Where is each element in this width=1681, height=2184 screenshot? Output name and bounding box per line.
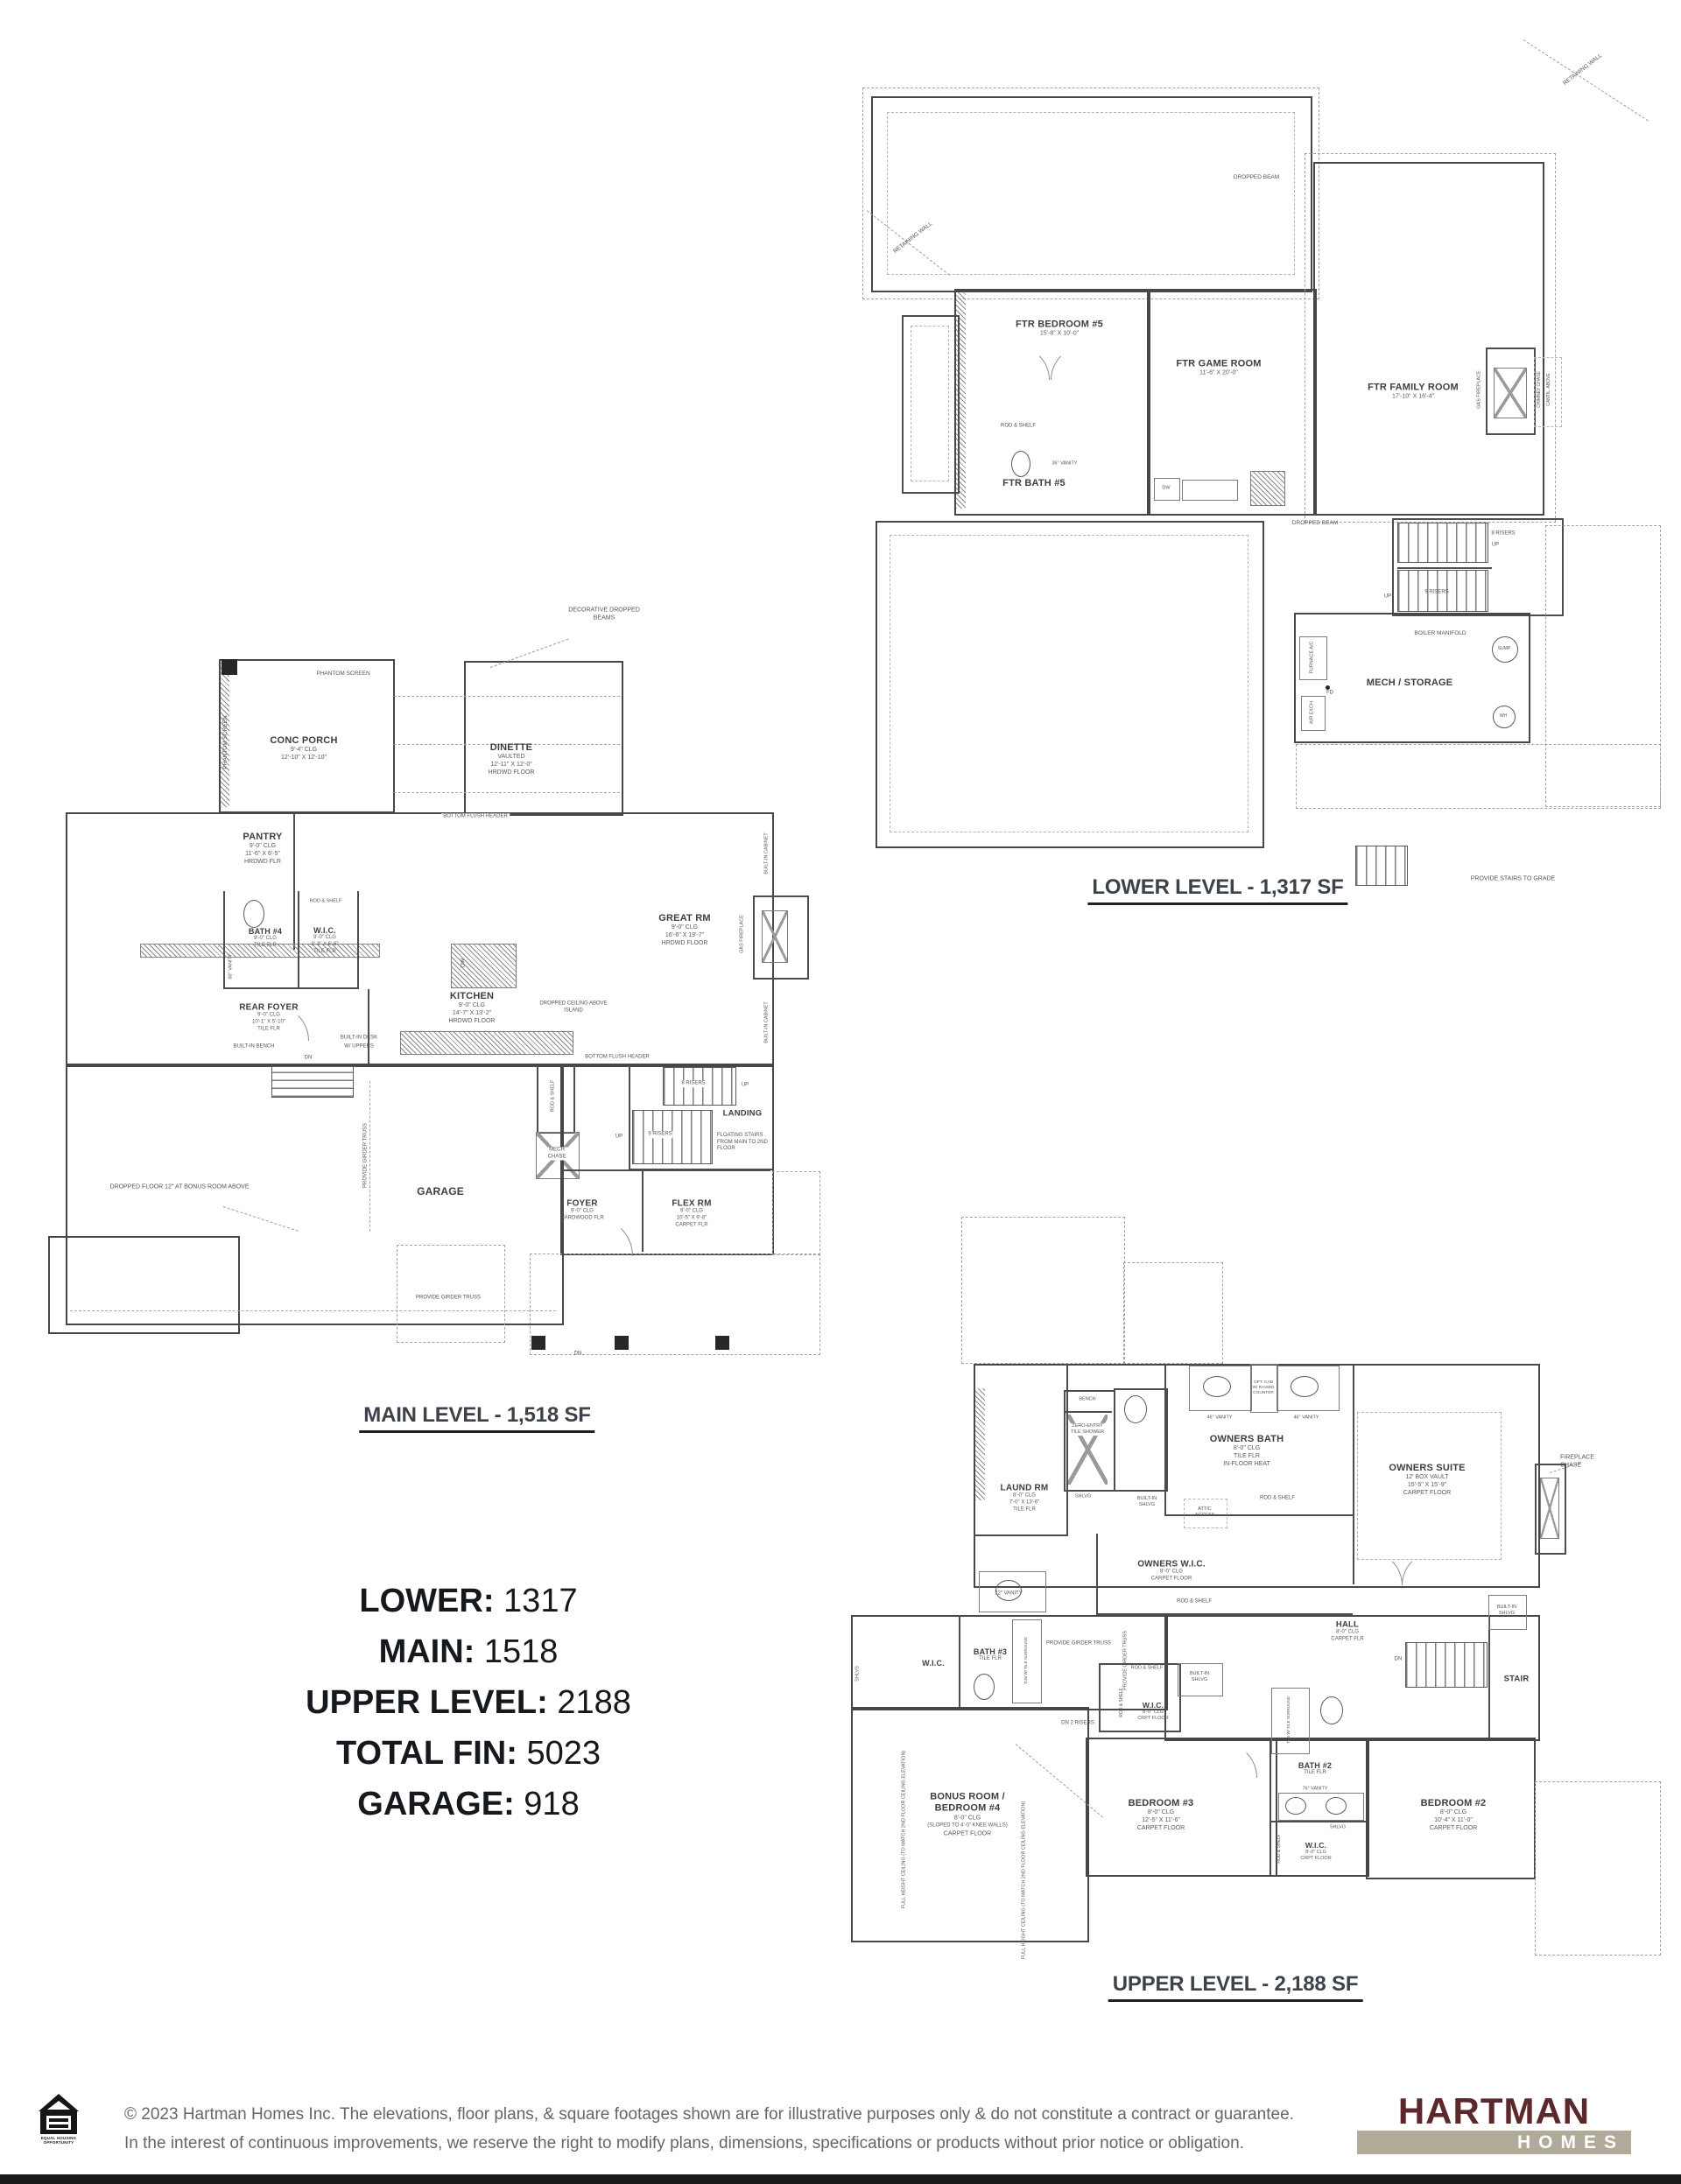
hatch-wall xyxy=(975,1388,985,1500)
copyright-text: © 2023 Hartman Homes Inc. The elevations… xyxy=(124,2100,1302,2158)
ann-sump: SUMP xyxy=(1498,646,1510,651)
ann-rod-and-shelf: ROD & SHELF xyxy=(1260,1495,1295,1502)
room-detail: 8'-0" CLG xyxy=(906,1815,1029,1822)
ann-bench: BENCH xyxy=(1079,1397,1095,1403)
room-title: BATH #4 xyxy=(249,927,282,936)
summary-value: 5023 xyxy=(526,1735,601,1772)
sink xyxy=(1285,1797,1306,1815)
sink xyxy=(1291,1376,1319,1397)
room-ftr-bedroom-5: FTR BEDROOM #5 15'-8" X 10'-0" xyxy=(1016,319,1103,337)
ann-water-heater: WH xyxy=(1500,713,1507,719)
partition xyxy=(293,812,295,950)
room-detail: 10'-1" X 5'-10" xyxy=(239,1020,299,1027)
ann-rod-and-shelf: ROD & SHELF xyxy=(551,1080,557,1113)
room-detail: TILE FLR xyxy=(1298,1770,1332,1777)
room-detail: TILE FLR xyxy=(974,1656,1007,1663)
stairs xyxy=(1405,1642,1488,1688)
ann-dishwasher: DW xyxy=(1162,486,1170,492)
refrigerator-box xyxy=(1250,471,1285,506)
ann-shlvg: SHLVG xyxy=(1330,1825,1346,1831)
room-detail: TILE FLR xyxy=(311,949,338,956)
partition xyxy=(1353,1364,1354,1584)
ann-dropped-beam: DROPPED BEAM xyxy=(1292,520,1338,527)
room-detail: 9'-0" CLG xyxy=(249,936,282,943)
partition xyxy=(974,1534,1066,1536)
room-detail: CARPET FLOOR xyxy=(1129,1825,1194,1833)
ann-cantilever-above: CANTIL. ABOVE xyxy=(1546,373,1551,406)
ann-rod-and-shelf: ROD & SHELF xyxy=(1277,1834,1282,1863)
room-title: OWNERS SUITE xyxy=(1389,1463,1465,1473)
truss-line xyxy=(70,1310,556,1311)
room-detail: 8'-0" CLG xyxy=(1421,1808,1487,1816)
ann-built-in-shlvg: BUILT-IN SHLVG xyxy=(1182,1671,1217,1683)
ann-up: UP xyxy=(1384,593,1391,600)
ann-floating-stairs: FLOATING STAIRS FROM MAIN TO 2ND FLOOR xyxy=(717,1133,770,1153)
summary-row: MAIN: 1518 xyxy=(306,1626,631,1677)
room-title: FTR FAMILY ROOM xyxy=(1368,382,1459,392)
ann-tub-tile-surround: TUB W/ TILE SURROUND xyxy=(1286,1696,1291,1744)
room-detail: CRPT FLOOR xyxy=(1300,1856,1331,1862)
room-title: BATH #3 xyxy=(974,1647,1007,1656)
wall xyxy=(48,1236,240,1334)
garage-door-outline xyxy=(397,1245,505,1343)
main-level-label: MAIN LEVEL - 1,518 SF xyxy=(359,1403,594,1433)
room-detail: CARPET FLOOR xyxy=(1137,1577,1206,1584)
ann-shlvg: SHLVG xyxy=(1075,1494,1091,1500)
porch-post xyxy=(715,1336,729,1350)
room-wic-bed2: W.I.C. 8'-0" CLG CRPT FLOOR xyxy=(1300,1841,1331,1863)
ann-bottom-flush-header: BOTTOM FLUSH HEADER xyxy=(583,1054,651,1061)
room-detail: 12' BOX VAULT xyxy=(1389,1473,1465,1481)
room-detail: 9'-0" CLG xyxy=(239,1013,299,1020)
room-detail: 3'-3" X 6'-6" xyxy=(311,942,338,949)
room-mech-storage: MECH / STORAGE xyxy=(1367,678,1453,688)
room-detail: 10'-4" X 11'-0" xyxy=(1421,1816,1487,1824)
room-detail: 8'-0" CLG xyxy=(1137,1710,1168,1716)
dashed-outline xyxy=(890,535,1248,832)
ann-floor-drain: FD xyxy=(1326,690,1333,697)
toilet xyxy=(243,900,264,928)
ann-up: UP xyxy=(615,1134,622,1141)
room-detail: 8'-0" CLG xyxy=(1001,1493,1049,1500)
ann-opt-cab: OPT. CAB W/ RAISED COUNTER xyxy=(1251,1380,1276,1396)
ann-60-vanity: 60" VANITY xyxy=(229,953,235,979)
room-detail: CARPET FLOOR xyxy=(1421,1825,1487,1833)
room-title: GARAGE xyxy=(417,1185,464,1197)
partition xyxy=(560,1169,770,1171)
bench-line xyxy=(1064,1411,1112,1413)
room-detail: 8'-0" CLG xyxy=(1210,1444,1284,1452)
room-title: OWNERS W.I.C. xyxy=(1137,1560,1206,1570)
ann-up: UP xyxy=(1492,542,1499,549)
ann-built-in-bench: BUILT-IN BENCH xyxy=(234,1043,275,1050)
stairs-to-grade xyxy=(1355,846,1408,886)
room-title: FOYER xyxy=(560,1199,603,1209)
room-laund-rm: LAUND RM 8'-0" CLG 7'-0" X 13'-6" TILE F… xyxy=(1001,1484,1049,1514)
ann-air-exchanger: AIR EXCH xyxy=(1310,701,1316,724)
room-detail: TILE FLR xyxy=(249,943,282,950)
ann-gas-fireplace: GAS FIREPLACE xyxy=(1477,370,1483,409)
ann-dishwasher: DW xyxy=(461,959,468,967)
room-detail: VAULTED xyxy=(489,753,535,761)
room-title: HALL xyxy=(1331,1620,1363,1630)
summary-row: TOTAL FIN: 5023 xyxy=(306,1728,631,1779)
room-landing: LANDING xyxy=(723,1109,763,1119)
ann-provide-stairs-to-grade: PROVIDE STAIRS TO GRADE xyxy=(1447,876,1579,884)
room-wic-left: W.I.C. xyxy=(922,1659,945,1668)
room-detail: TILE FLR xyxy=(1001,1506,1049,1513)
room-detail: 11'-6" X 6'-5" xyxy=(243,850,282,858)
room-detail: CRPT FLOOR xyxy=(1137,1716,1168,1722)
ann-built-in-shlvg: BUILT-IN SHLVG xyxy=(1130,1496,1164,1508)
room-title: W.I.C. xyxy=(1300,1841,1331,1850)
summary-label: MAIN: xyxy=(379,1633,475,1670)
ann-provide-girder-truss: PROVIDE GIRDER TRUSS xyxy=(1044,1640,1113,1647)
stair-divider xyxy=(1397,567,1492,569)
ann-dropped-ceiling-island: DROPPED CEILING ABOVE ISLAND xyxy=(538,1001,608,1015)
room-detail: TILE FLR xyxy=(239,1026,299,1033)
room-detail: TILE FLR xyxy=(1210,1452,1284,1460)
square-footage-summary: LOWER: 1317 MAIN: 1518 UPPER LEVEL: 2188… xyxy=(306,1576,631,1829)
room-detail: 8'-0" CLG xyxy=(1129,1808,1194,1816)
room-title: MECH / STORAGE xyxy=(1367,678,1453,688)
room-title: FTR BEDROOM #5 xyxy=(1016,319,1103,329)
room-bath-4: BATH #4 9'-0" CLG TILE FLR xyxy=(249,927,282,950)
room-detail: 8'-0" CLG xyxy=(1331,1630,1363,1637)
page-bottom-edge xyxy=(0,2174,1681,2184)
room-rear-foyer: REAR FOYER 9'-0" CLG 10'-1" X 5'-10" TIL… xyxy=(239,1003,299,1034)
dashed-roof xyxy=(1535,1781,1661,1956)
room-kitchen: KITCHEN 9'-0" CLG 14'-7" X 13'-2" HRDWD … xyxy=(449,991,496,1026)
ann-dropped-beam: DROPPED BEAM xyxy=(1234,174,1279,181)
room-title: FLEX RM xyxy=(672,1199,711,1209)
room-detail: 8'-0" CLG xyxy=(1300,1850,1331,1856)
ann-dropped-floor: DROPPED FLOOR 12" AT BONUS ROOM ABOVE xyxy=(105,1184,254,1192)
partition xyxy=(223,987,357,989)
summary-row: GARAGE: 918 xyxy=(306,1779,631,1829)
room-flex-rm: FLEX RM 9'-0" CLG 10'-5" X 9'-8" CARPET … xyxy=(672,1199,711,1230)
ann-built-in-shlvg: BUILT-IN SHLVG xyxy=(1489,1605,1524,1617)
ann-full-height-ceiling: FULL HEIGHT CEILING (TO MATCH 2ND FLOOR … xyxy=(902,1731,908,1928)
room-bonus-bedroom-4: BONUS ROOM / BEDROOM #4 8'-0" CLG (SLOPE… xyxy=(906,1792,1029,1838)
ann-rod-and-shelf: ROD & SHELF xyxy=(310,899,342,905)
room-detail: 15'-8" X 10'-0" xyxy=(1016,329,1103,337)
room-title: BEDROOM #3 xyxy=(1129,1798,1194,1808)
wall xyxy=(1313,162,1544,516)
ann-46-vanity: 46" VANITY xyxy=(1206,1415,1232,1422)
summary-row: LOWER: 1317 xyxy=(306,1576,631,1626)
beam-line xyxy=(394,792,620,793)
ann-shlvs: SHLVS xyxy=(855,1666,862,1682)
wall xyxy=(560,1064,774,1255)
partition xyxy=(1164,1364,1166,1516)
ann-zero-entry-shower: ZERO-ENTRY TILE SHOWER xyxy=(1068,1423,1107,1436)
summary-value: 1518 xyxy=(484,1633,559,1670)
room-detail: 11'-6" X 20'-0" xyxy=(1176,369,1261,376)
room-detail: 9'-0" CLG xyxy=(560,1209,603,1216)
partition xyxy=(223,891,225,987)
lower-level-label: LOWER LEVEL - 1,317 SF xyxy=(1087,875,1347,905)
ann-chimney-chase: CHIMNEY CHASE xyxy=(1537,371,1542,408)
dashed-outline xyxy=(961,1217,1125,1364)
partition xyxy=(357,891,359,989)
ann-full-height-ceiling: FULL HEIGHT CEILING (TO MATCH 2ND FLOOR … xyxy=(1022,1781,1028,1979)
ann-rod-and-shelf: ROD & SHELF xyxy=(1131,1666,1164,1672)
ann-dn-2-risers: DN 2 RISERS xyxy=(1061,1720,1094,1727)
homes-bar: HOMES xyxy=(1357,2131,1631,2154)
dashed-outline xyxy=(887,112,1295,275)
sink xyxy=(1326,1797,1347,1815)
room-dinette: DINETTE VAULTED 12'-11" X 12'-0" HRDWD F… xyxy=(489,742,535,777)
room-detail: 17'-10" X 16'-4" xyxy=(1368,392,1459,400)
dashed-patio xyxy=(1296,744,1661,809)
room-title: CONC PORCH xyxy=(270,735,337,746)
room-title: BONUS ROOM / BEDROOM #4 xyxy=(906,1792,1029,1815)
floor-plan-sheet: FTR BEDROOM #5 15'-8" X 10'-0" FTR GAME … xyxy=(0,0,1681,2184)
summary-value: 2188 xyxy=(557,1684,631,1721)
partition xyxy=(1488,1615,1490,1738)
upper-level-label: UPPER LEVEL - 2,188 SF xyxy=(1108,1972,1363,2002)
toilet xyxy=(1011,451,1030,477)
kitchen-counter xyxy=(400,1031,573,1055)
room-title: LAUND RM xyxy=(1001,1484,1049,1493)
room-title: W.I.C. xyxy=(922,1659,945,1668)
summary-label: GARAGE: xyxy=(357,1786,514,1822)
room-detail: 12'-10" X 12'-10" xyxy=(270,754,337,762)
ann-76-vanity: 76" VANITY xyxy=(1302,1787,1327,1793)
room-garage: GARAGE xyxy=(417,1185,464,1197)
partition xyxy=(642,1169,644,1252)
room-detail: 15'-5" X 15'-9" xyxy=(1389,1481,1465,1489)
room-title: BATH #2 xyxy=(1298,1761,1332,1770)
ann-8-risers: 8 RISERS xyxy=(1491,530,1515,537)
room-owners-bath: OWNERS BATH 8'-0" CLG TILE FLR IN-FLOOR … xyxy=(1210,1434,1284,1469)
room-pantry: PANTRY 9'-0" CLG 11'-6" X 6'-5" HRDWD FL… xyxy=(243,832,282,867)
porch-post xyxy=(531,1336,545,1350)
room-detail: 12'-5" X 11'-6" xyxy=(1129,1816,1194,1824)
retaining-wall-line xyxy=(1523,39,1649,121)
summary-value: 918 xyxy=(524,1786,579,1822)
equal-housing-logo: EQUAL HOUSING OPPORTUNITY xyxy=(39,2094,79,2145)
ann-furnace: FURNACE A/C xyxy=(1310,642,1316,674)
room-bedroom-2: BEDROOM #2 8'-0" CLG 10'-4" X 11'-0" CAR… xyxy=(1421,1798,1487,1833)
ann-provide-girder-truss: PROVIDE GIRDER TRUSS xyxy=(362,1123,369,1188)
ann-rod-and-shelf: ROD & SHELF xyxy=(1177,1598,1212,1605)
room-detail: 9'-0" CLG xyxy=(449,1001,496,1009)
room-title: STAIR xyxy=(1504,1675,1530,1684)
ann-provide-girder-truss: PROVIDE GIRDER TRUSS xyxy=(1123,1631,1129,1690)
toilet xyxy=(1124,1395,1147,1423)
partition xyxy=(298,891,299,989)
ann-72-vanity: 72" VANITY xyxy=(995,1591,1023,1598)
room-title: W.I.C. xyxy=(311,926,338,935)
dashed-outline xyxy=(772,1171,820,1255)
room-detail: 12'-11" X 12'-0" xyxy=(489,761,535,769)
room-detail: 9'-0" CLG xyxy=(672,1209,711,1216)
room-detail: 9'-0" CLG xyxy=(311,935,338,942)
room-ftr-game-room: FTR GAME ROOM 11'-6" X 20'-0" xyxy=(1176,358,1261,376)
ann-gas-fireplace: GAS FIREPLACE xyxy=(740,915,746,953)
ann-built-in-desk: BUILT-IN DESK xyxy=(341,1035,377,1042)
summary-label: TOTAL FIN: xyxy=(336,1735,517,1772)
room-detail: CARPET FLOOR xyxy=(1389,1490,1465,1498)
ann-36-vanity: 36" VANITY xyxy=(1052,461,1077,467)
ann-fireplace-chase: FIREPLACE CHASE xyxy=(1560,1454,1613,1470)
ann-46-vanity: 46" VANITY xyxy=(1293,1415,1319,1422)
room-owners-wic: OWNERS W.I.C. 8'-0" CLG CARPET FLOOR xyxy=(1137,1560,1206,1584)
ann-phantom-screen: PHANTOM SCREEN xyxy=(316,671,369,678)
hartman-wordmark: HARTMAN xyxy=(1357,2094,1631,2129)
fireplace-insert xyxy=(762,910,788,963)
cabinet-box xyxy=(1182,480,1238,501)
fireplace-insert xyxy=(1540,1478,1559,1539)
truss-line xyxy=(369,1081,370,1232)
hartman-homes-logo: HARTMAN HOMES xyxy=(1357,2094,1631,2154)
dashed-outline xyxy=(911,326,949,481)
summary-row: UPPER LEVEL: 2188 xyxy=(306,1677,631,1728)
dashed-outline xyxy=(1123,1262,1223,1364)
beam-line xyxy=(394,696,620,697)
ann-provide-girder-truss: PROVIDE GIRDER TRUSS xyxy=(404,1295,492,1302)
ann-built-in-cabinet: BUILT-IN CABINET xyxy=(764,832,770,874)
ann-tub-tile-surround: TUB W/ TILE SURROUND xyxy=(1023,1637,1029,1684)
ann-rod-and-shelf: ROD & SHELF xyxy=(1119,1688,1124,1717)
ann-9-risers: 9 RISERS xyxy=(1424,589,1448,596)
room-detail: 10'-5" X 9'-8" xyxy=(672,1216,711,1223)
partition xyxy=(1270,1821,1366,1822)
room-ftr-family-room: FTR FAMILY ROOM 17'-10" X 16'-4" xyxy=(1368,382,1459,400)
ann-attic-access: ATTIC ACCESS xyxy=(1190,1506,1220,1519)
ann-dn: DN xyxy=(574,1351,582,1358)
room-detail: 14'-7" X 13'-2" xyxy=(449,1009,496,1017)
room-detail: HRDWD FLR xyxy=(243,859,282,867)
room-detail: 16'-6" X 19'-7" xyxy=(658,931,710,939)
ann-desk-uppers: W/ UPPERS xyxy=(344,1043,374,1050)
ann-dn: DN xyxy=(1395,1656,1403,1663)
fireplace-insert xyxy=(1494,368,1527,418)
room-title: FTR BATH #5 xyxy=(1002,478,1066,488)
room-bath-3: BATH #3 TILE FLR xyxy=(974,1647,1007,1663)
ann-built-in-cabinet: BUILT-IN CABINET xyxy=(764,1001,770,1043)
equal-housing-text-line: OPPORTUNITY xyxy=(39,2140,79,2145)
room-title: DINETTE xyxy=(489,742,535,753)
porch-post xyxy=(615,1336,629,1350)
ann-rod-and-shelf: ROD & SHELF xyxy=(1001,423,1036,430)
partition xyxy=(1096,1534,1098,1614)
room-title: PANTRY xyxy=(243,832,282,842)
room-title: BEDROOM #2 xyxy=(1421,1798,1487,1808)
ann-8-risers: 8 RISERS xyxy=(680,1080,706,1087)
ann-9-risers: 9 RISERS xyxy=(647,1131,672,1138)
room-detail: CARPET FLR xyxy=(672,1222,711,1229)
room-detail: (SLOPED TO 4'-0" KNEE WALLS) xyxy=(906,1822,1029,1829)
room-title: FTR GAME ROOM xyxy=(1176,358,1261,369)
partition xyxy=(959,1615,960,1707)
ann-decorative-dropped-beams: DECORATIVE DROPPED BEAMS xyxy=(565,607,644,622)
room-title: W.I.C. xyxy=(1137,1701,1168,1710)
room-detail: 9'-0" CLG xyxy=(243,842,282,850)
room-foyer: FOYER 9'-0" CLG HARDWOOD FLR xyxy=(560,1199,603,1223)
room-bedroom-3: BEDROOM #3 8'-0" CLG 12'-5" X 11'-6" CAR… xyxy=(1129,1798,1194,1833)
room-great-rm: GREAT RM 9'-0" CLG 16'-6" X 19'-7" HRDWD… xyxy=(658,913,710,948)
room-title: GREAT RM xyxy=(658,913,710,923)
room-conc-porch: CONC PORCH 9'-4" CLG 12'-10" X 12'-10" xyxy=(270,735,337,762)
room-bath-2: BATH #2 TILE FLR xyxy=(1298,1761,1332,1777)
room-owners-suite: OWNERS SUITE 12' BOX VAULT 15'-5" X 15'-… xyxy=(1389,1463,1465,1498)
ann-boiler-manifold: BOILER MANIFOLD xyxy=(1412,630,1467,637)
ann-up: UP xyxy=(742,1082,749,1089)
room-detail: CARPET FLR xyxy=(1331,1637,1363,1644)
room-title: OWNERS BATH xyxy=(1210,1434,1284,1444)
ann-mech-chase: MECH CHASE xyxy=(542,1148,572,1161)
homes-wordmark: HOMES xyxy=(1517,2132,1631,2152)
copyright-line-1: © 2023 Hartman Homes Inc. The elevations… xyxy=(124,2100,1302,2129)
room-detail: IN-FLOOR HEAT xyxy=(1210,1461,1284,1469)
summary-value: 1317 xyxy=(503,1583,578,1619)
room-detail: HRDWD FLOOR xyxy=(449,1018,496,1026)
stairs xyxy=(1397,523,1488,563)
porch-post xyxy=(222,659,237,675)
partition xyxy=(368,989,369,1064)
room-detail: 8'-0" CLG xyxy=(1137,1570,1206,1577)
room-title: REAR FOYER xyxy=(239,1003,299,1013)
room-detail: HRDWD FLOOR xyxy=(489,769,535,777)
toilet xyxy=(974,1674,995,1700)
room-title: KITCHEN xyxy=(449,991,496,1001)
summary-label: LOWER: xyxy=(359,1583,494,1619)
copyright-line-2: In the interest of continuous improvemen… xyxy=(124,2129,1302,2158)
equal-housing-text: EQUAL HOUSING OPPORTUNITY xyxy=(39,2136,79,2145)
room-wic-main: W.I.C. 9'-0" CLG 3'-3" X 6'-6" TILE FLR xyxy=(311,926,338,956)
room-detail: CARPET FLOOR xyxy=(906,1829,1029,1837)
room-detail: 7'-0" X 13'-6" xyxy=(1001,1500,1049,1507)
equal-housing-icon xyxy=(39,2094,79,2111)
ann-phantom-screen: PHANTOM SCREEN xyxy=(222,715,229,769)
room-detail: HRDWD FLOOR xyxy=(658,940,710,948)
ann-dn: DN xyxy=(305,1055,313,1062)
room-title: LANDING xyxy=(723,1109,763,1119)
toilet xyxy=(1320,1696,1343,1724)
room-hall: HALL 8'-0" CLG CARPET FLR xyxy=(1331,1620,1363,1644)
room-wic-bed3: W.I.C. 8'-0" CLG CRPT FLOOR xyxy=(1137,1701,1168,1723)
room-stair: STAIR xyxy=(1504,1675,1530,1684)
room-detail: 9'-0" CLG xyxy=(658,923,710,931)
sink xyxy=(1203,1376,1231,1397)
room-detail: HARDWOOD FLR xyxy=(560,1216,603,1223)
floor-drain xyxy=(1326,685,1330,690)
summary-label: UPPER LEVEL: xyxy=(306,1684,548,1721)
front-porch-outline xyxy=(530,1254,820,1355)
room-ftr-bath-5: FTR BATH #5 xyxy=(1002,478,1066,488)
ann-bottom-flush-header: BOTTOM FLUSH HEADER xyxy=(441,813,510,820)
room-detail: 9'-4" CLG xyxy=(270,746,337,754)
